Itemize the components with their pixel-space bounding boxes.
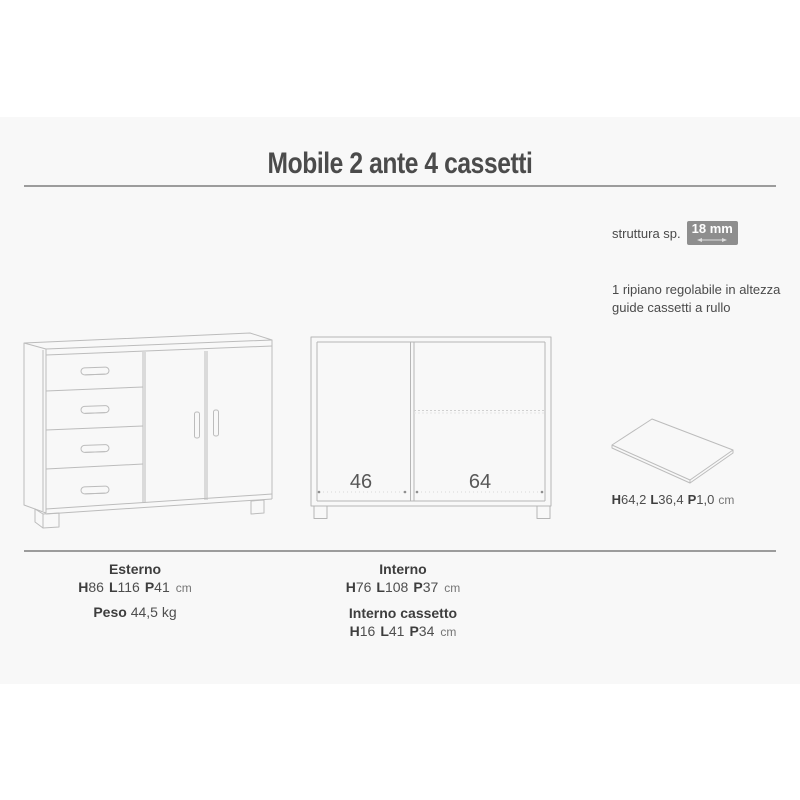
shelf-dim-l-value: 36,4 (658, 492, 683, 507)
external-specs-title: Esterno (30, 561, 240, 578)
dimension-arrow-icon (697, 237, 727, 243)
adjustable-shelf-line (414, 411, 545, 414)
internal-specs: Interno H76L108P37cm Interno cassetto H1… (298, 561, 508, 641)
weight-row: Peso 44,5 kg (30, 604, 240, 621)
cabinet-front-view-drawing: 46 64 (305, 332, 560, 524)
structure-thickness-value: 18 mm (692, 222, 733, 236)
shelf-dimensions: H64,2L36,4P1,0cm (598, 492, 748, 507)
shelf-drawing (600, 414, 745, 486)
page-title: Mobile 2 ante 4 cassetti (72, 147, 728, 179)
shelf-dim-p-value: 1,0 (696, 492, 714, 507)
drawer-handle-icons (81, 367, 109, 494)
right-compartment-width: 64 (469, 471, 491, 493)
drawer-internal-dimensions: H16L41P34cm (298, 623, 508, 641)
structure-thickness-badge: 18 mm (687, 221, 738, 245)
shelf-dim-h-label: H (612, 492, 621, 507)
spec-sheet: Mobile 2 ante 4 cassetti struttura sp. 1… (0, 0, 800, 800)
title-underline (24, 185, 776, 187)
external-dimensions: H86L116P41cm (30, 579, 240, 597)
internal-specs-title: Interno (298, 561, 508, 578)
structure-thickness-label: struttura sp. (612, 226, 681, 241)
structure-thickness-row: struttura sp. 18 mm (612, 221, 738, 245)
cabinet-perspective-drawing (10, 328, 290, 538)
internal-dimensions: H76L108P37cm (298, 579, 508, 597)
bottom-separator (24, 550, 776, 552)
left-compartment-width: 46 (350, 471, 372, 493)
drawer-internal-title: Interno cassetto (298, 605, 508, 622)
weight-label: Peso (93, 604, 126, 620)
shelf-dim-p-label: P (688, 492, 697, 507)
shelf-dim-h-value: 64,2 (621, 492, 646, 507)
note-shelf: 1 ripiano regolabile in altezza (612, 281, 780, 299)
note-drawer-guides: guide cassetti a rullo (612, 299, 780, 317)
feature-notes: 1 ripiano regolabile in altezza guide ca… (612, 281, 780, 317)
external-specs: Esterno H86L116P41cm Peso 44,5 kg (30, 561, 240, 621)
weight-value: 44,5 kg (131, 604, 177, 620)
shelf-dim-unit: cm (718, 493, 734, 507)
